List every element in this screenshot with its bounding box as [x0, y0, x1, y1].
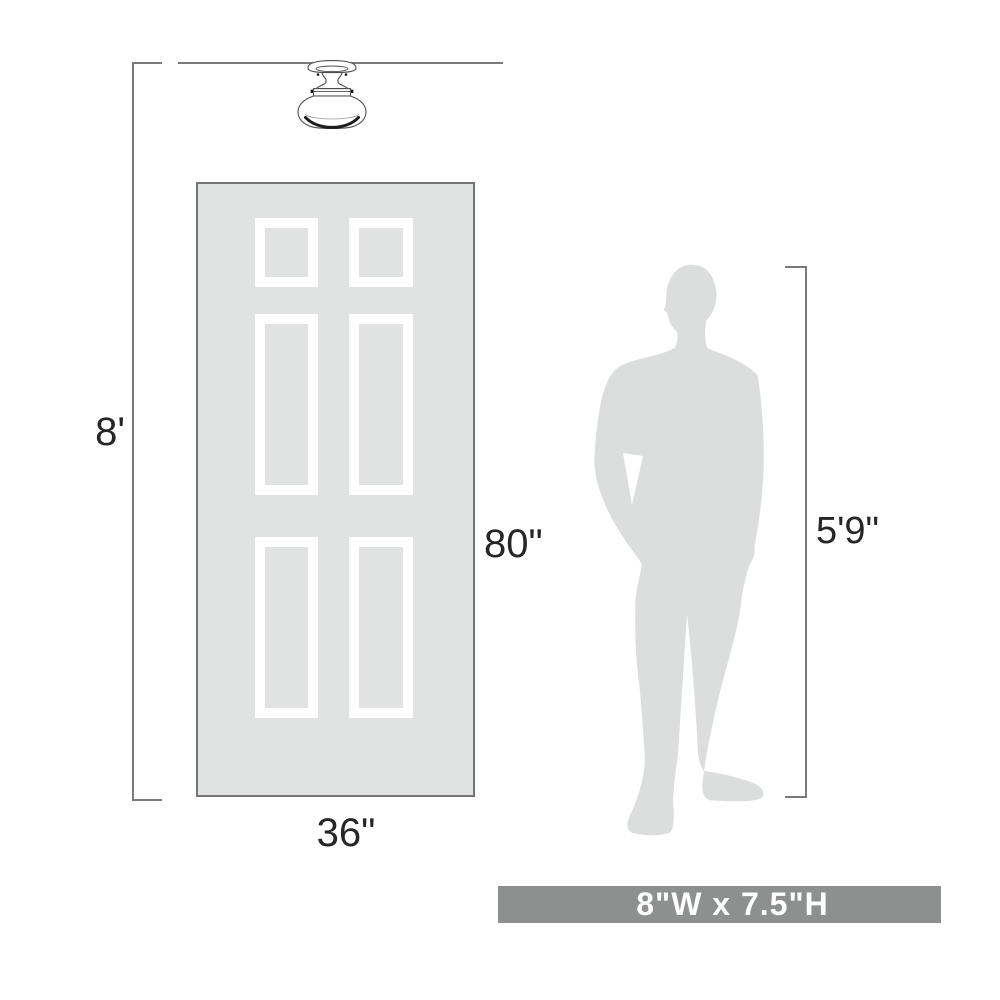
fixture-screw-icon [345, 73, 348, 76]
door-panel [349, 537, 413, 718]
door-panel [349, 314, 413, 495]
door-panel [255, 314, 318, 495]
size-banner: 8"W x 7.5"H [498, 886, 941, 923]
ceiling-height-bracket-top-tick [132, 62, 162, 64]
door-width-label: 36" [286, 811, 406, 855]
ceiling-height-bracket-bottom-tick [132, 799, 162, 801]
door-panel [349, 218, 413, 287]
person-height-bracket-line [805, 266, 807, 798]
door-panel [255, 218, 318, 287]
semi-flush-ceiling-light-icon [295, 58, 375, 138]
person-height-bracket-top-tick [785, 266, 807, 268]
door-height-label: 80" [484, 522, 543, 566]
fitter-thumbscrew-icon [311, 90, 313, 93]
ceiling-height-bracket-line [132, 62, 134, 801]
size-banner-label: 8"W x 7.5"H [610, 886, 829, 923]
door-panel [255, 537, 318, 718]
scale-diagram: 8' 80" 36" 5'9" [0, 0, 1000, 1000]
door-illustration [196, 182, 475, 797]
fixture-screw-icon [317, 73, 320, 76]
person-height-bracket-bottom-tick [785, 796, 807, 798]
person-height-label: 5'9" [816, 511, 879, 553]
man-silhouette-icon [590, 262, 770, 840]
fitter-thumbscrew-icon [351, 90, 353, 93]
ceiling-height-label: 8' [40, 410, 125, 454]
